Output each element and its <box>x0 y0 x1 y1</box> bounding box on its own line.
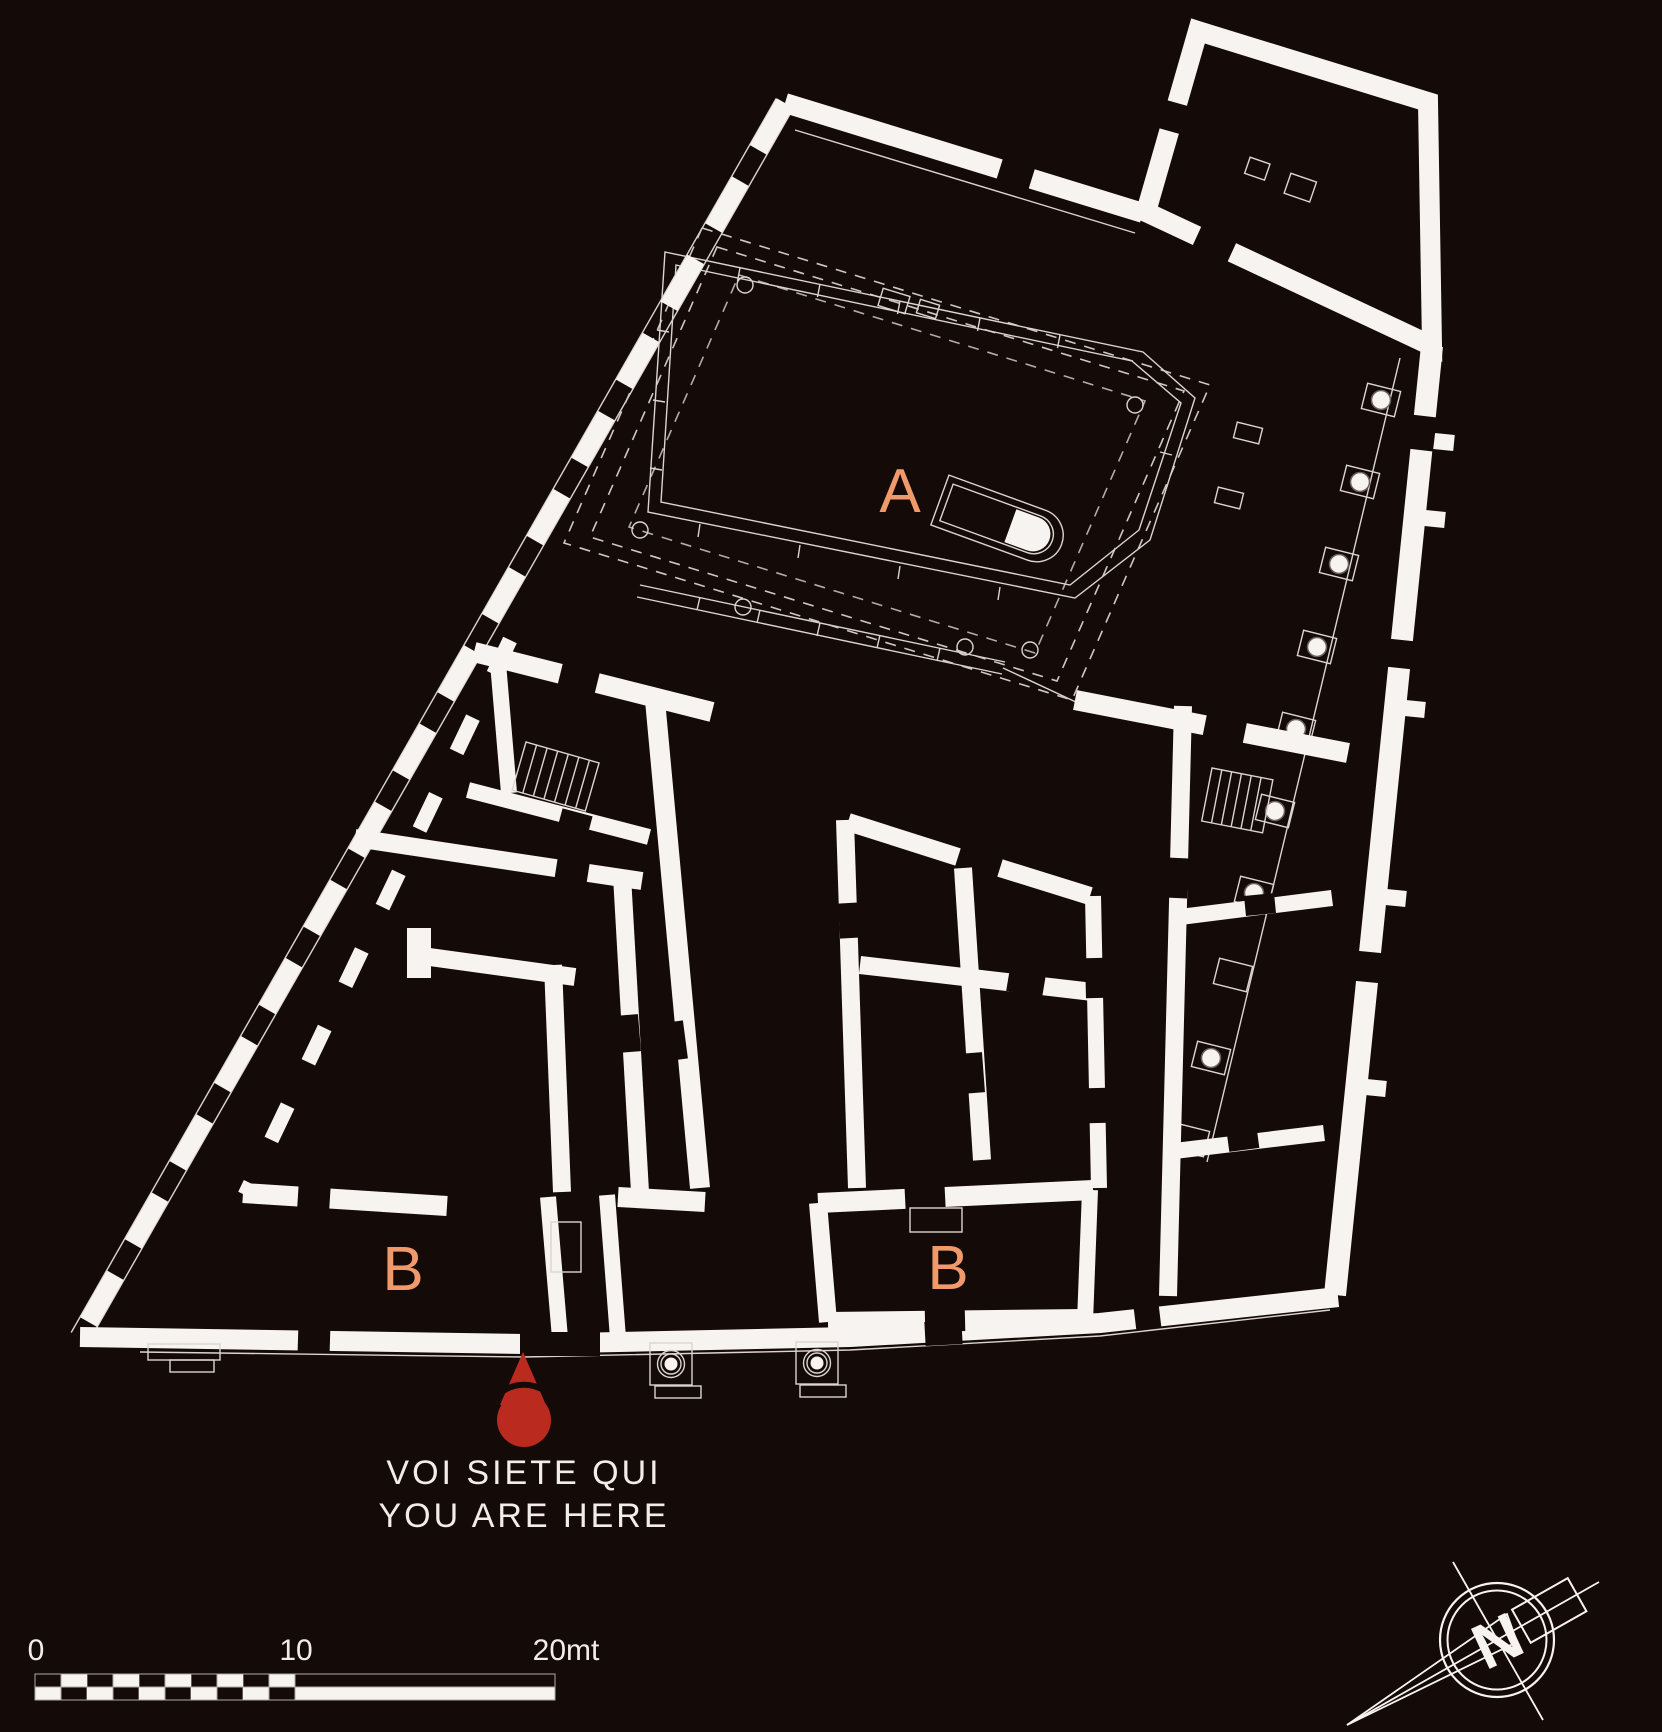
annex-room <box>1146 31 1432 346</box>
southeast-rooms <box>1075 700 1348 1296</box>
shop-block-west <box>243 1193 705 1338</box>
altar <box>931 475 1071 569</box>
you-are-here-label-it: VOI SIETE QUI <box>386 1454 661 1492</box>
area-label-b-west: B <box>382 1235 423 1304</box>
you-are-here-label-en: YOU ARE HERE <box>378 1497 669 1535</box>
street-step <box>170 1360 214 1372</box>
wellhead-left <box>650 1343 701 1398</box>
temple-podium-outline <box>648 252 1263 600</box>
site-plan-svg: A B B VOI SIETE QUI YOU ARE HERE 0 10 20… <box>0 0 1662 1732</box>
staircase-east <box>1202 768 1273 833</box>
compass-north-letter: N <box>1461 1599 1533 1684</box>
wellhead-right <box>796 1342 846 1397</box>
area-label-b-east: B <box>927 1234 968 1303</box>
scale-tick-0: 0 <box>28 1634 45 1667</box>
scale-bar: 0 10 20mt <box>28 1634 600 1700</box>
northwest-rooms <box>355 651 712 1192</box>
porch <box>910 1208 962 1232</box>
area-label-a: A <box>879 457 921 526</box>
north-compass-icon: N <box>1347 1562 1599 1725</box>
scale-tick-20: 20mt <box>533 1634 600 1667</box>
scale-tick-10: 10 <box>279 1634 312 1667</box>
central-rooms <box>845 820 1099 1188</box>
you-are-here-pin-icon <box>489 1352 559 1447</box>
